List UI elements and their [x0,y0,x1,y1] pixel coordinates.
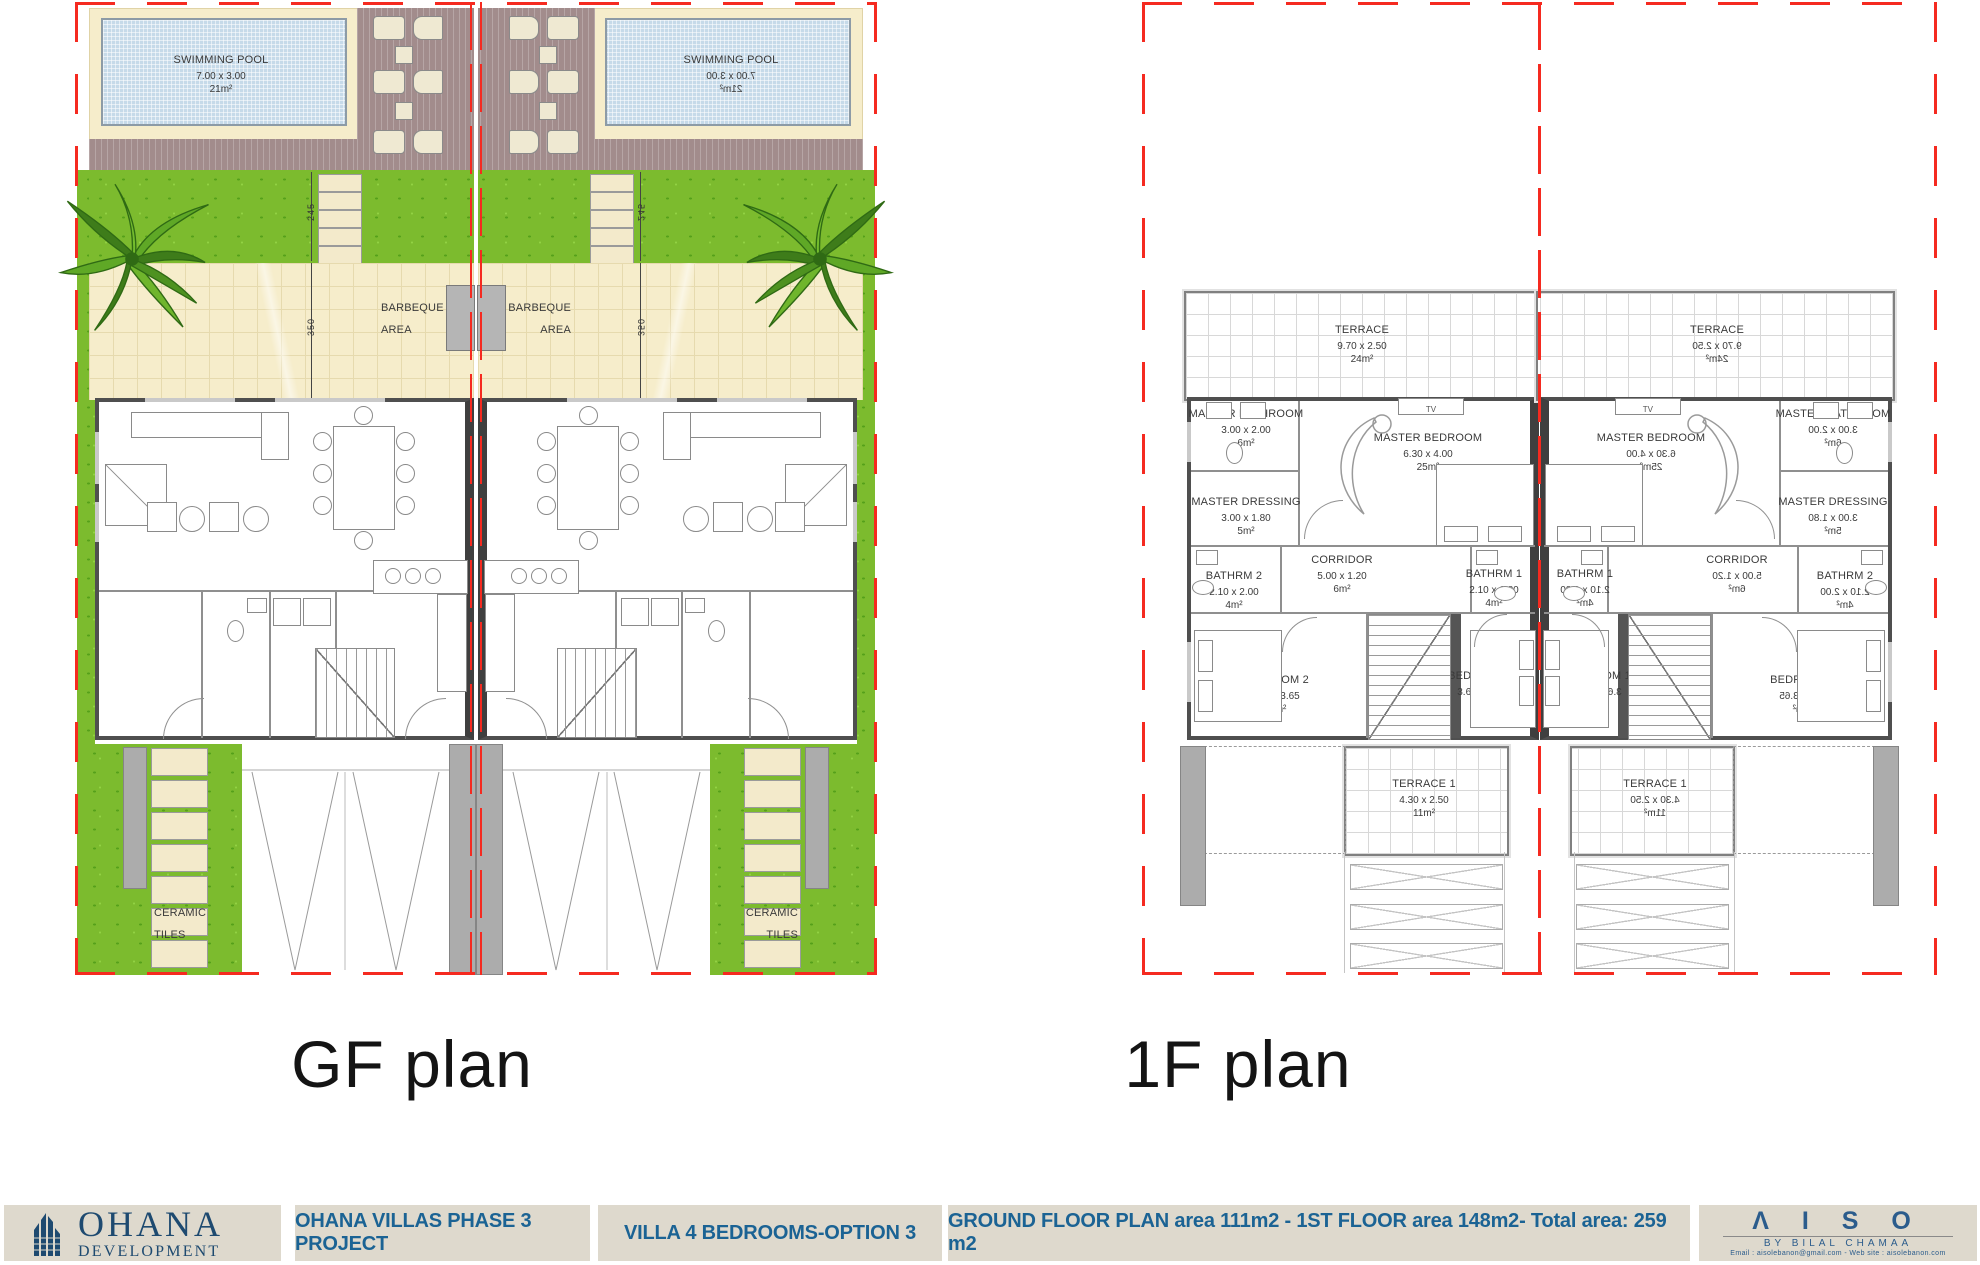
stepping-stone [590,228,634,246]
footer-aiso-panel: Λ I S O BY BILAL CHAMAA Email : aisoleba… [1699,1205,1977,1261]
ff-plot: TERRACE 9.70 x 2.50 24m² MASTER BATHROOM… [1142,2,1937,975]
sun-lounger [413,70,443,94]
window [853,502,857,542]
ceramic-line1: CERAMIC [154,906,206,921]
dryer [303,598,331,626]
bathrm1-label: BATHRM 1 2.10 x 1.80 4m² [1466,562,1522,611]
window [853,432,857,484]
garden-wall [123,747,147,889]
bathrm2-dim: 2.10 x 2.00 [1206,586,1262,600]
ceramic-tile [151,844,208,872]
villa-option: VILLA 4 BEDROOMS-OPTION 3 [624,1222,916,1245]
coffee-table [747,506,773,532]
corridor-dim: 5.00 x 1.20 [1311,570,1373,584]
pillow [1444,526,1478,542]
pillow [1198,680,1213,712]
barbeque-line2: AREA [540,323,571,338]
sink [1813,402,1839,419]
terrace-name: TERRACE [1335,323,1389,338]
wood-deck-strip [595,139,863,170]
pergola-slat [1350,904,1503,930]
pillow [1198,640,1213,672]
barbeque-line1: BARBEQUE [508,301,571,316]
ohana-logo-sub: DEVELOPMENT [78,1244,223,1260]
ohana-buildings-icon [30,1210,68,1256]
staircase [315,648,395,738]
stepping-stone [590,246,634,264]
hob-burner [511,568,527,584]
coffee-table [243,506,269,532]
side-wall [1873,746,1899,906]
terrace1-area: 11m² [1623,807,1687,821]
plot-border-bottom [75,972,877,975]
sink [1861,550,1883,565]
toilet [1494,586,1516,601]
ceramic-line2: TILES [154,928,186,943]
pillow [1866,680,1881,712]
master-bathroom-dim: 3.00 x 2.00 [1776,424,1891,438]
coffee-table [179,506,205,532]
master-dressing-name: MASTER DRESSING [1778,495,1887,510]
master-dressing-dim: 3.00 x 1.80 [1191,512,1300,526]
garden-wall [805,747,829,889]
partition [1711,614,1713,738]
dining-chair [620,496,639,515]
armchair [209,502,239,532]
project-title: OHANA VILLAS PHASE 3 PROJECT [295,1210,590,1256]
stepping-stone [318,246,362,264]
master-dressing-name: MASTER DRESSING [1191,495,1300,510]
terrace-area: 24m² [1690,353,1744,367]
terrace1-label: TERRACE 1 4.30 x 2.50 11m² [1392,772,1456,821]
wood-deck-strip [89,139,357,170]
sun-lounger [373,70,405,94]
aiso-logo: Λ I S O [1752,1209,1924,1234]
wood-deck [357,8,474,170]
sink [1240,402,1266,419]
ceramic-tile [744,876,801,904]
dining-chair [354,406,373,425]
tv-unit: TV [1398,398,1464,415]
hob-burner [551,568,567,584]
toilet [1836,442,1853,464]
sofa-corner [663,412,691,460]
plot-border-right [1934,2,1937,975]
plot-border-right [874,2,877,975]
washer [651,598,679,626]
parking-marks [242,744,449,975]
terrace1-dim: 4.30 x 2.50 [1392,794,1456,808]
ceramic-tile [151,940,208,968]
toilet [227,620,244,642]
footer-logo-panel: OHANA DEVELOPMENT [4,1205,281,1261]
armchair [713,502,743,532]
wood-deck [478,8,595,170]
armchair [147,502,177,532]
barbeque-line2: AREA [381,323,412,338]
sun-lounger [509,16,539,40]
dining-chair [313,496,332,515]
dining-chair [313,432,332,451]
ceramic-line1: CERAMIC [746,906,798,921]
driveway [242,744,449,975]
footer-project-panel: OHANA VILLAS PHASE 3 PROJECT [295,1205,590,1261]
dining-chair [537,432,556,451]
pool-area: 21m² [174,83,269,97]
coffee-table [683,506,709,532]
plot-border-top [75,2,877,5]
dining-chair [313,464,332,483]
terrace-label: TERRACE 9.70 x 2.50 24m² [1335,318,1389,367]
pool-label: SWIMMING POOL 7.00 x 3.00 21m² [684,48,779,97]
aiso-byline: BY BILAL CHAMAA [1764,1238,1912,1249]
deck-table [395,46,413,64]
terrace1-name: TERRACE 1 [1623,777,1687,792]
hob-burner [531,568,547,584]
pergola-slat [1576,864,1729,890]
gf-plot: SWIMMING POOL 7.00 x 3.00 21m² 245 350 B… [75,2,877,975]
ceramic-tile [744,812,801,840]
barbeque-label: BARBEQUE AREA [381,296,444,339]
pergola-slat [1576,904,1729,930]
bathrm1-area: 4m² [1557,597,1613,611]
dining-chair [396,432,415,451]
terrace1-name: TERRACE 1 [1392,777,1456,792]
stepping-stone [318,174,362,192]
window [145,398,235,402]
sun-lounger [509,130,539,154]
terrace-area: 24m² [1335,353,1389,367]
sun-lounger [509,70,539,94]
pergola-slat [1576,943,1729,969]
partition [681,592,683,738]
gf-title: GF plan [291,1026,533,1102]
plot-line [1504,852,1505,973]
deck-table [539,46,557,64]
window [95,502,99,542]
partition [269,592,271,738]
corridor-label: CORRIDOR 5.00 x 1.20 6m² [1311,548,1373,597]
tv-label: TV [1426,403,1436,416]
stepping-stone [590,192,634,210]
pillow [1545,676,1560,706]
plot-divider [1538,2,1541,975]
bathrm2-label: BATHRM 2 2.10 x 2.00 4m² [1206,564,1262,613]
pool-name: SWIMMING POOL [174,53,269,68]
pool-dim: 7.00 x 3.00 [174,70,269,84]
washer [273,598,301,626]
armchair [775,502,805,532]
toilet [708,620,725,642]
sink [1206,402,1232,419]
staircase [557,648,637,738]
terrace1-dim: 4.30 x 2.50 [1623,794,1687,808]
plot-line [1734,852,1735,973]
corridor-area: 6m² [1706,583,1768,597]
ff-villa-right: TERRACE 9.70 x 2.50 24m² MASTER BATHROOM… [1540,2,1937,975]
staircase [1628,614,1711,740]
window [567,398,677,402]
bathrm1-name: BATHRM 1 [1466,567,1522,582]
toilet [1226,442,1243,464]
dining-chair [579,406,598,425]
ff-title: 1F plan [1124,1026,1351,1102]
sink [685,598,705,613]
sun-lounger [373,130,405,154]
kitchen-counter [485,594,515,692]
sink [1581,550,1603,565]
dining-chair [620,464,639,483]
ceramic-line2: TILES [766,928,798,943]
pool-dim: 7.00 x 3.00 [684,70,779,84]
gf-villa-left: SWIMMING POOL 7.00 x 3.00 21m² 245 350 B… [75,2,474,975]
bathrm2-area: 4m² [1817,599,1873,613]
toilet [1563,586,1585,601]
sun-lounger [373,16,405,40]
sun-lounger [413,130,443,154]
corridor-name: CORRIDOR [1706,553,1768,568]
deck-table [395,102,413,120]
master-dressing-label: MASTER DRESSING 3.00 x 1.80 5m² [1191,490,1300,539]
dim-350: 350 [636,297,646,357]
plot-divider [470,2,472,975]
terrace1-label: TERRACE 1 4.30 x 2.50 11m² [1623,772,1687,821]
dining-chair [620,432,639,451]
sun-lounger [413,16,443,40]
deck-table [539,102,557,120]
plot-divider [480,2,482,975]
corridor-area: 6m² [1311,583,1373,597]
stepping-stone [318,192,362,210]
dining-chair [354,531,373,550]
dim-350: 350 [306,297,316,357]
partition [1191,470,1299,472]
terrace1-area: 11m² [1392,807,1456,821]
sofa [131,412,281,438]
plot-border-left [1142,2,1145,975]
ff-villa-left: TERRACE 9.70 x 2.50 24m² MASTER BATHROOM… [1142,2,1539,975]
bathrm1-name: BATHRM 1 [1557,567,1613,582]
master-dressing-area: 5m² [1778,525,1887,539]
window [275,398,385,402]
parking-marks [503,744,710,975]
pillow [1601,526,1635,542]
master-bathroom-dim: 3.00 x 2.00 [1189,424,1304,438]
dim-245: 245 [636,182,646,242]
partition [1780,470,1888,472]
pool-name: SWIMMING POOL [684,53,779,68]
tv-unit: TV [1615,398,1681,415]
ceramic-tile [151,780,208,808]
master-dressing-area: 5m² [1191,525,1300,539]
ceramic-tile [151,876,208,904]
bathrm2-area: 4m² [1206,599,1262,613]
hob-burner [425,568,441,584]
dining-chair [396,496,415,515]
pergola-slat [1350,943,1503,969]
bathrm2-name: BATHRM 2 [1817,569,1873,584]
terrace-dim: 9.70 x 2.50 [1335,340,1389,354]
staircase [1368,614,1451,740]
toilet [1865,580,1887,595]
sink [1847,402,1873,419]
sun-lounger [547,70,579,94]
dim-245: 245 [306,182,316,242]
plot-line [1344,852,1345,973]
partition [1797,547,1799,613]
dining-table [333,426,395,530]
dining-chair [537,496,556,515]
pool-area: 21m² [684,83,779,97]
stepping-stone [318,228,362,246]
ceramic-tile [744,940,801,968]
pillow [1488,526,1522,542]
ohana-logo-text: OHANA DEVELOPMENT [78,1206,223,1260]
corridor-name: CORRIDOR [1311,553,1373,568]
bathrm1-label: BATHRM 1 2.10 x 1.80 4m² [1557,562,1613,611]
pillow [1545,640,1560,670]
gf-villa-right: SWIMMING POOL 7.00 x 3.00 21m² 245 350 B… [478,2,877,975]
dining-table [557,426,619,530]
master-bathroom-area: 6m² [1189,437,1304,451]
sun-lounger [547,16,579,40]
dining-chair [396,464,415,483]
side-wall [1180,746,1206,906]
drawing-sheet: SWIMMING POOL 7.00 x 3.00 21m² 245 350 B… [0,0,1980,1265]
ceramic-label: CERAMIC TILES [154,901,206,944]
stepping-stone [590,210,634,228]
footer-areas-panel: GROUND FLOOR PLAN area 111m2 - 1ST FLOOR… [948,1205,1690,1261]
master-dressing-label: MASTER DRESSING 3.00 x 1.80 5m² [1778,490,1887,539]
master-bathroom-area: 6m² [1776,437,1891,451]
sun-lounger [547,130,579,154]
plot-line [1574,852,1575,973]
tv-label: TV [1643,403,1653,416]
void-outline [1204,746,1346,854]
sink [247,598,267,613]
stepping-stone [590,174,634,192]
pillow [1866,640,1881,672]
window [1888,642,1892,702]
corridor-label: CORRIDOR 5.00 x 1.20 6m² [1706,548,1768,597]
ceramic-tile [744,748,801,776]
corridor-dim: 5.00 x 1.20 [1706,570,1768,584]
pergola-slat [1350,864,1503,890]
master-dressing-dim: 3.00 x 1.80 [1778,512,1887,526]
ceramic-tile [151,748,208,776]
window [717,398,807,402]
void-outline [1733,746,1875,854]
pool-label: SWIMMING POOL 7.00 x 3.00 21m² [174,48,269,97]
ceramic-tile [151,812,208,840]
driveway [503,744,710,975]
hob-burner [385,568,401,584]
terrace-dim: 9.70 x 2.50 [1690,340,1744,354]
palm-tree-icon [47,174,217,344]
palm-tree-icon [735,174,905,344]
sink [1196,550,1218,565]
bathrm1-area: 4m² [1466,597,1522,611]
barbeque-line1: BARBEQUE [381,301,444,316]
ohana-logo-name: OHANA [78,1206,223,1242]
window [95,432,99,484]
hob-burner [405,568,421,584]
aiso-divider [1723,1236,1953,1237]
plot-border-left [75,2,78,975]
sofa-corner [261,412,289,460]
dryer [621,598,649,626]
pillow [1557,526,1591,542]
bathrm2-name: BATHRM 2 [1206,569,1262,584]
barbeque-label: BARBEQUE AREA [508,296,571,339]
kitchen-counter [437,594,467,692]
partition [1280,547,1282,613]
ceramic-tile [744,844,801,872]
ceramic-label: CERAMIC TILES [746,901,798,944]
stepping-stone [318,210,362,228]
pillow [1519,640,1534,670]
terrace-label: TERRACE 9.70 x 2.50 24m² [1690,318,1744,367]
toilet [1192,580,1214,595]
dining-chair [579,531,598,550]
window [1187,642,1191,702]
pillow [1519,676,1534,706]
aiso-contact: Email : aisolebanon@gmail.com - Web site… [1730,1250,1945,1257]
sink [1476,550,1498,565]
terrace-name: TERRACE [1690,323,1744,338]
sofa [671,412,821,438]
ceramic-tile [744,780,801,808]
floor-areas: GROUND FLOOR PLAN area 111m2 - 1ST FLOOR… [948,1210,1690,1256]
footer-villa-panel: VILLA 4 BEDROOMS-OPTION 3 [598,1205,942,1261]
dining-chair [537,464,556,483]
